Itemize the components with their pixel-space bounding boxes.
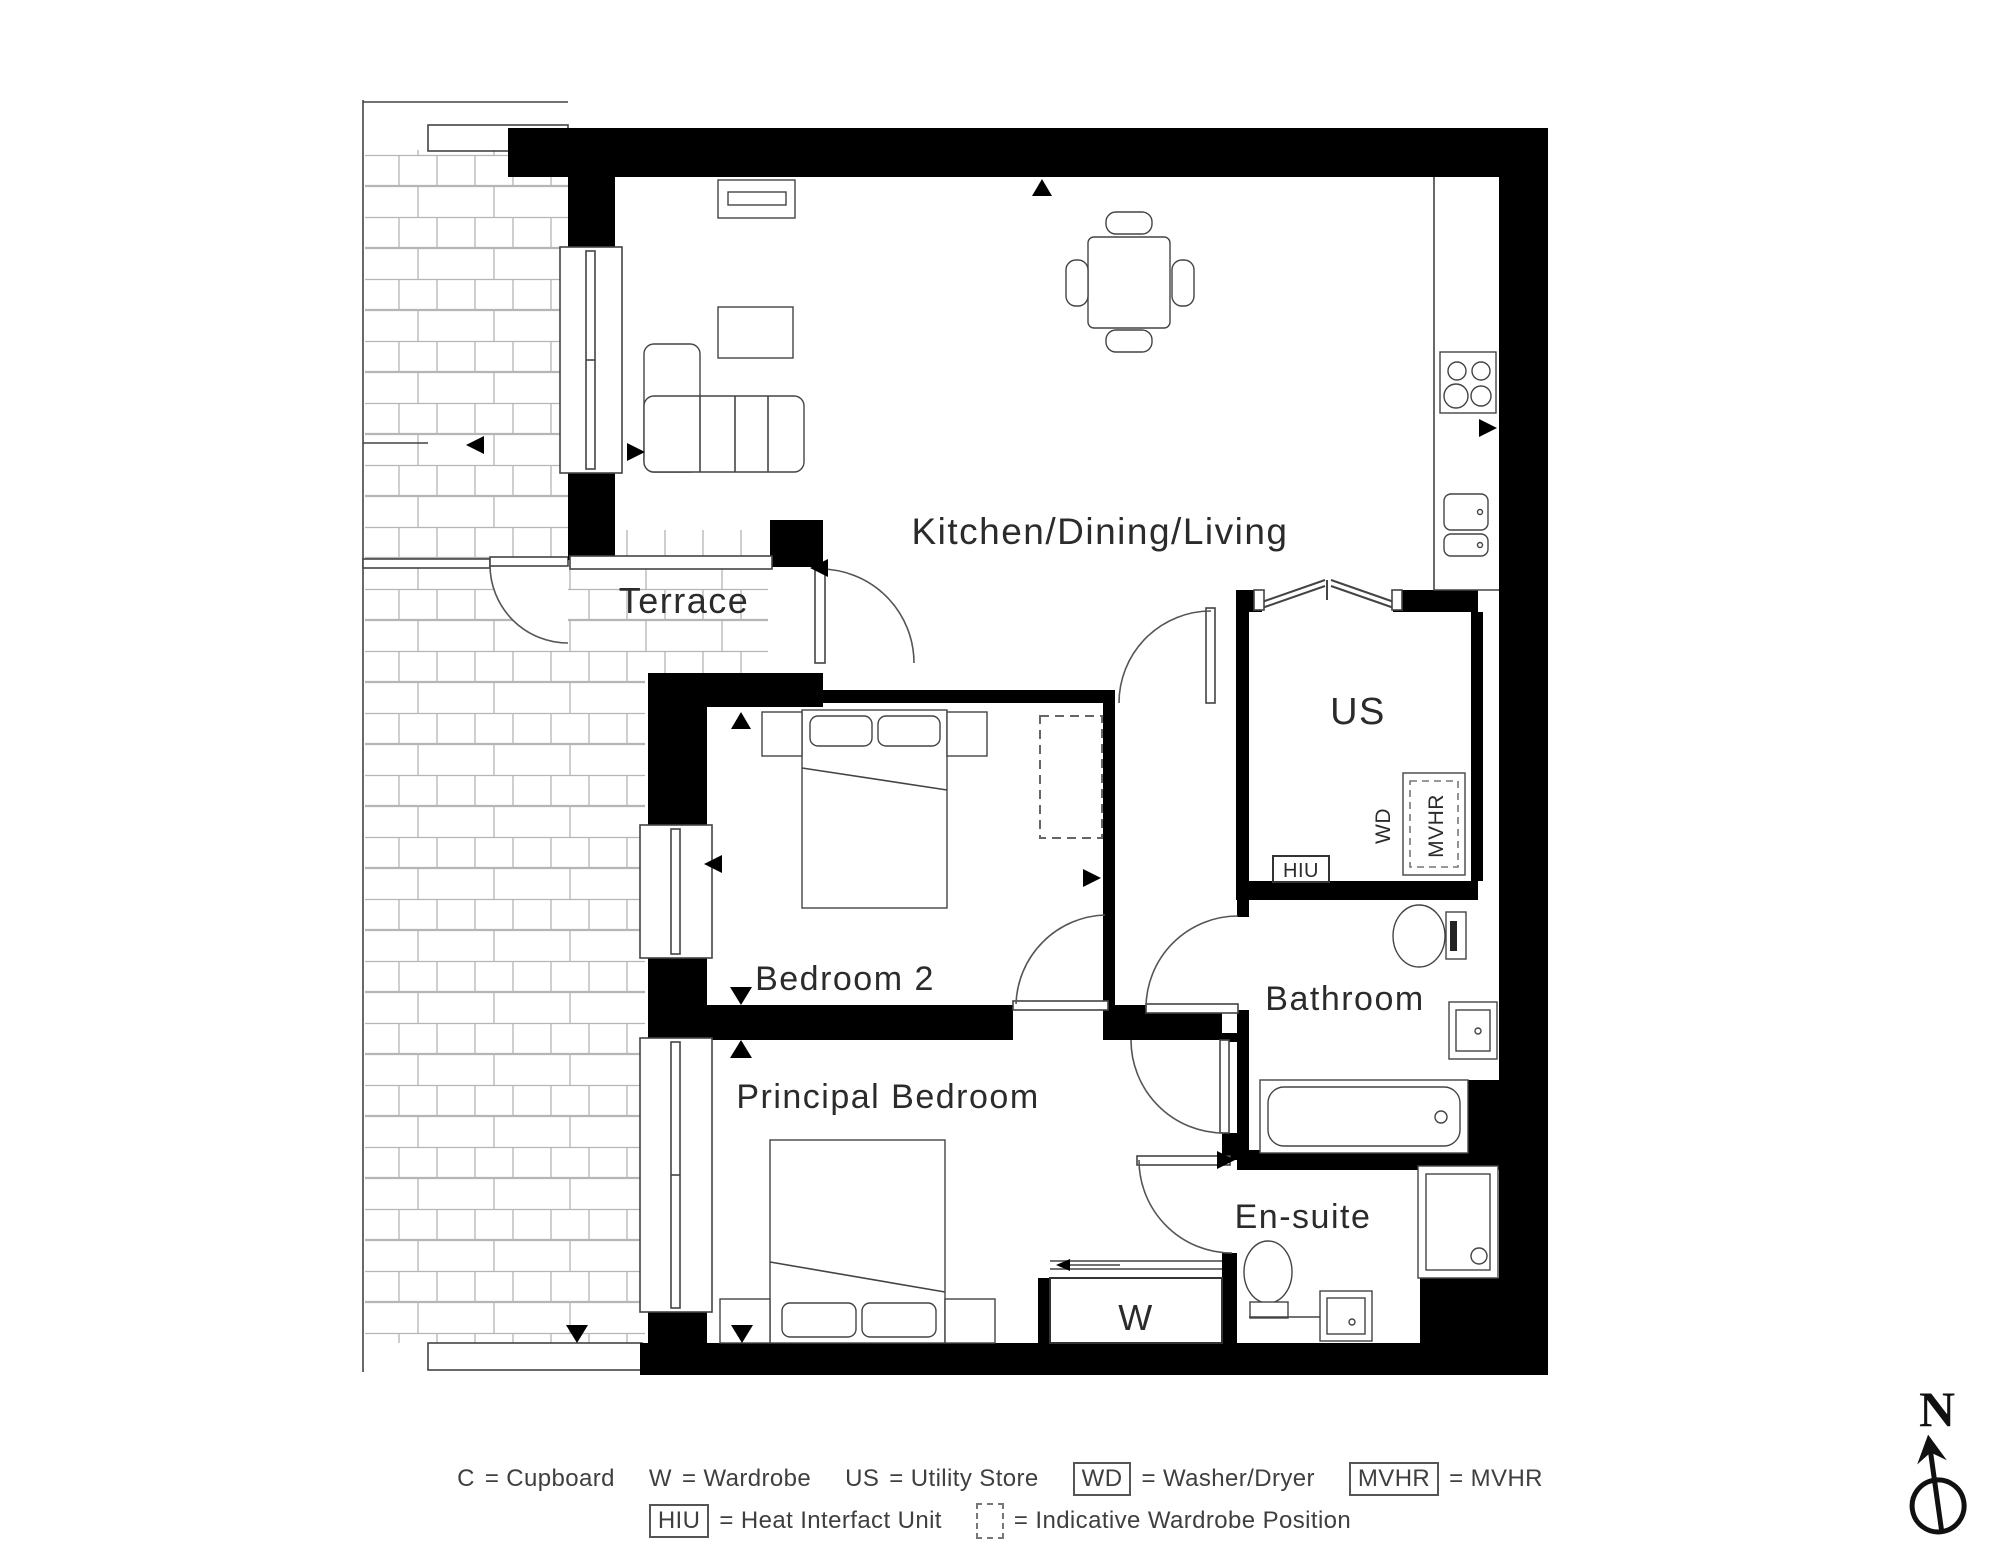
room-label-bathroom: Bathroom bbox=[1265, 980, 1424, 1018]
legend-key-mvhr: MVHR bbox=[1349, 1462, 1439, 1496]
wall-us-bottom bbox=[1236, 881, 1478, 900]
legend-value-wardrobe: = Wardrobe bbox=[682, 1465, 811, 1493]
legend-value-hiu: = Heat Interfact Unit bbox=[719, 1507, 942, 1535]
legend-row-1: C = Cupboard W = Wardrobe US = Utility S… bbox=[457, 1462, 1543, 1496]
wall-bath-nook bbox=[1468, 1080, 1499, 1150]
door-kitchen-entry bbox=[815, 567, 914, 663]
wall-bathroom-west bbox=[1237, 1010, 1249, 1150]
door-bathroom bbox=[1146, 916, 1238, 1013]
indicative-wardrobe-icon bbox=[976, 1503, 1004, 1539]
arrow-icon bbox=[1083, 869, 1101, 887]
legend-item-iwp: = Indicative Wardrobe Position bbox=[976, 1503, 1351, 1539]
wall-step-block bbox=[770, 520, 823, 567]
legend-key-utility: US bbox=[845, 1465, 879, 1493]
arrow-icon bbox=[627, 443, 645, 461]
window-living bbox=[560, 247, 622, 473]
legend-item-hiu: HIU = Heat Interfact Unit bbox=[649, 1504, 942, 1538]
bedroom2-fixtures bbox=[762, 710, 1102, 908]
legend-item-cupboard: C = Cupboard bbox=[457, 1465, 615, 1493]
door-principal bbox=[1131, 1040, 1229, 1133]
terrace-gate-leaf bbox=[490, 557, 568, 566]
wall-us-west bbox=[1236, 605, 1249, 881]
wall-kitchen-west-lower bbox=[568, 470, 615, 560]
legend-row-2: HIU = Heat Interfact Unit = Indicative W… bbox=[649, 1503, 1351, 1539]
terrace-paving-lower bbox=[365, 673, 645, 1343]
arrow-icon bbox=[730, 987, 752, 1005]
legend-item-wardrobe: W = Wardrobe bbox=[649, 1465, 811, 1493]
glazed-screen bbox=[570, 556, 772, 569]
room-label-terrace: Terrace bbox=[619, 580, 750, 621]
wd-label: WD bbox=[1372, 808, 1395, 844]
legend-value-utility: = Utility Store bbox=[889, 1465, 1038, 1493]
legend-key-cupboard: C bbox=[457, 1465, 475, 1493]
wall-between-bedrooms-west bbox=[648, 1005, 1013, 1040]
north-compass: N bbox=[1880, 1378, 2000, 1548]
legend: C = Cupboard W = Wardrobe US = Utility S… bbox=[0, 1462, 2000, 1539]
legend-key-wd: WD bbox=[1073, 1462, 1132, 1496]
hiu-box: HIU bbox=[1273, 856, 1329, 882]
legend-value-mvhr: = MVHR bbox=[1449, 1465, 1543, 1493]
wall-principal-east-c bbox=[1222, 1253, 1237, 1348]
door-us-bifold bbox=[1254, 580, 1402, 610]
wall-bedroom2-west-upper bbox=[648, 707, 707, 828]
wall-us-top-right bbox=[1393, 590, 1478, 612]
sink-icon bbox=[1444, 494, 1488, 556]
north-letter: N bbox=[1919, 1381, 1955, 1437]
legend-value-cupboard: = Cupboard bbox=[485, 1465, 615, 1493]
wall-kitchen-west-upper bbox=[568, 177, 615, 250]
arrow-icon bbox=[1032, 179, 1052, 196]
bed-icon-bedroom2 bbox=[762, 710, 987, 908]
terrace-wall-stub bbox=[363, 559, 490, 568]
mvhr-label: MVHR bbox=[1425, 794, 1448, 858]
toilet-icon-bathroom bbox=[1393, 905, 1466, 967]
door-hall bbox=[1119, 608, 1215, 703]
compass-arrow-icon bbox=[1902, 1431, 1967, 1535]
basin-icon-bathroom bbox=[1449, 1002, 1497, 1059]
legend-value-iwp: = Indicative Wardrobe Position bbox=[1014, 1507, 1351, 1535]
legend-item-wd: WD = Washer/Dryer bbox=[1073, 1462, 1315, 1496]
wall-principal-west-stub bbox=[648, 1310, 707, 1350]
wall-ensuite-south-block bbox=[1420, 1278, 1499, 1343]
arrow-icon bbox=[1479, 419, 1497, 437]
room-label-ensuite: En-suite bbox=[1235, 1198, 1372, 1236]
legend-item-utility: US = Utility Store bbox=[845, 1465, 1039, 1493]
legend-item-mvhr: MVHR = MVHR bbox=[1349, 1462, 1543, 1496]
mvhr-unit: MVHR WD bbox=[1372, 773, 1465, 875]
door-bedroom2 bbox=[1013, 915, 1108, 1010]
arrow-icon bbox=[731, 712, 751, 729]
window-bedroom2 bbox=[640, 825, 712, 958]
wall-bedroom2-north-thin bbox=[823, 690, 1115, 703]
legend-key-hiu: HIU bbox=[649, 1504, 710, 1538]
dining-table-icon bbox=[1066, 212, 1194, 352]
tv-unit-icon bbox=[718, 180, 795, 218]
room-label-us: US bbox=[1330, 691, 1386, 733]
wall-top bbox=[508, 128, 1548, 177]
terrace-bottom-band bbox=[428, 1343, 642, 1370]
wall-bedroom2-west-lower bbox=[648, 955, 707, 1007]
basin-icon-ensuite bbox=[1320, 1291, 1372, 1341]
room-label-bedroom2: Bedroom 2 bbox=[755, 960, 935, 998]
us-fixtures: HIU MVHR WD bbox=[1273, 773, 1465, 882]
wall-bottom bbox=[640, 1343, 1548, 1375]
sofa-icon bbox=[644, 344, 804, 472]
wall-bedroom2-east bbox=[1103, 703, 1115, 1040]
floor-plan: HIU MVHR WD Kitchen/Dining/Living Terrac… bbox=[0, 0, 2000, 1561]
room-label-principal: Principal Bedroom bbox=[736, 1078, 1039, 1116]
legend-key-wardrobe: W bbox=[649, 1465, 672, 1493]
wall-bathroom-west-stub bbox=[1237, 900, 1249, 917]
room-label-kitchen: Kitchen/Dining/Living bbox=[911, 511, 1288, 552]
hiu-label: HIU bbox=[1283, 860, 1319, 882]
wall-us-east bbox=[1471, 612, 1483, 881]
hob-icon bbox=[1440, 352, 1496, 413]
coffee-table-icon bbox=[718, 307, 793, 358]
terrace-paving-upper bbox=[365, 150, 568, 530]
bed-icon-principal bbox=[720, 1140, 995, 1343]
window-principal bbox=[640, 1038, 712, 1312]
bath-icon bbox=[1260, 1080, 1468, 1153]
bathroom-fixtures bbox=[1260, 905, 1497, 1153]
floor-plan-page: HIU MVHR WD Kitchen/Dining/Living Terrac… bbox=[0, 0, 2000, 1561]
toilet-icon-ensuite bbox=[1244, 1241, 1292, 1318]
wall-wardrobe-stub bbox=[1038, 1278, 1050, 1343]
door-ensuite bbox=[1137, 1156, 1232, 1253]
indicative-wardrobe-box bbox=[1040, 716, 1102, 838]
shower-icon bbox=[1418, 1166, 1498, 1278]
wall-bedroom2-north-thick bbox=[648, 673, 823, 707]
room-label-wardrobe: W bbox=[1118, 1297, 1153, 1338]
legend-value-wd: = Washer/Dryer bbox=[1141, 1465, 1314, 1493]
arrow-icon bbox=[730, 1040, 752, 1058]
